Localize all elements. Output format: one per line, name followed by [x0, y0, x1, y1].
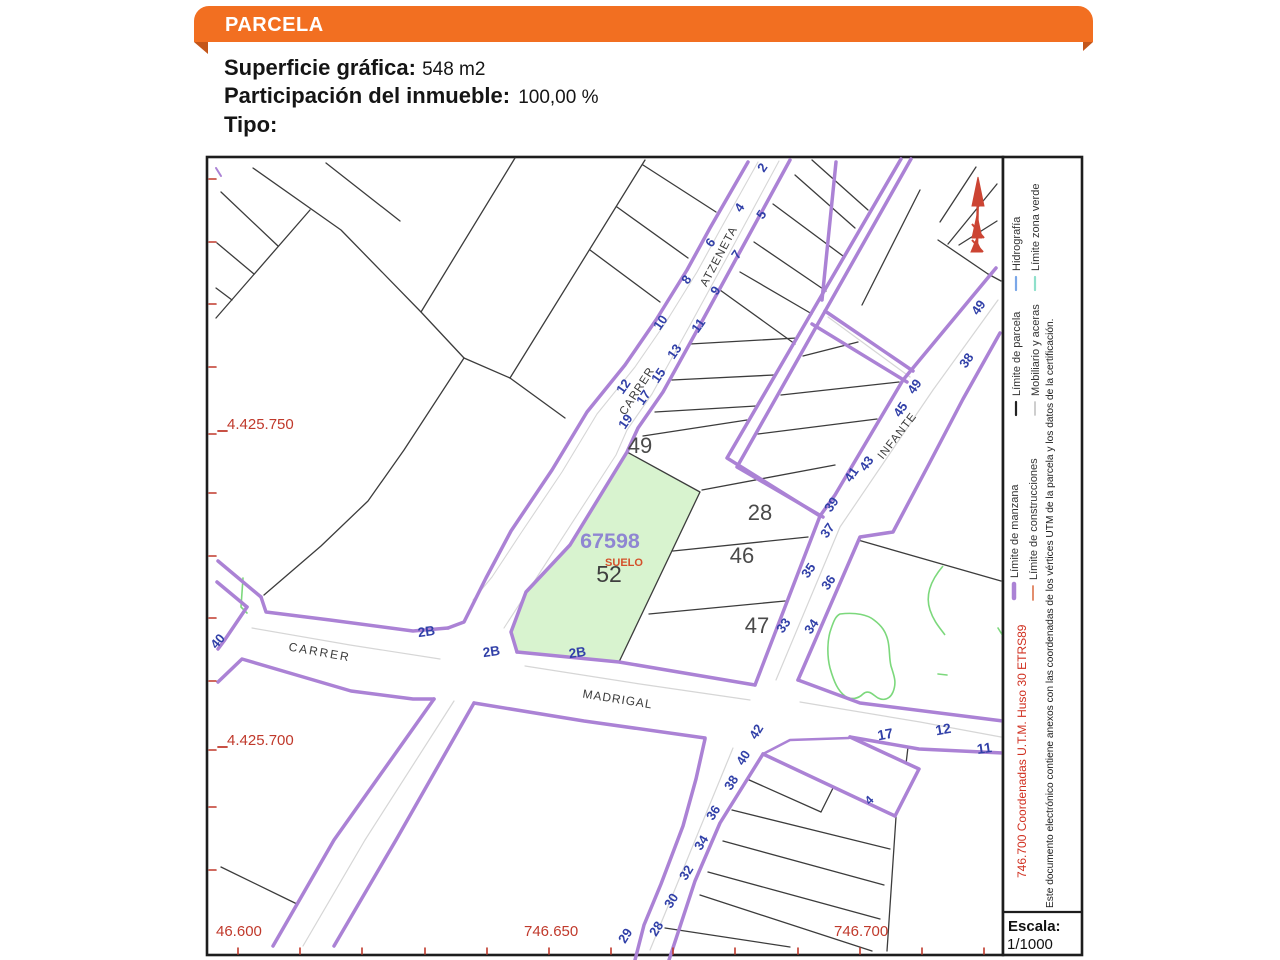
svg-text:2B: 2B — [417, 623, 436, 640]
svg-text:746.700: 746.700 — [834, 923, 888, 940]
svg-text:49: 49 — [628, 433, 652, 458]
svg-text:Este documento electrónico con: Este documento electrónico contiene anex… — [1045, 319, 1056, 909]
svg-text:Límite de parcela: Límite de parcela — [1011, 311, 1023, 396]
svg-text:11: 11 — [976, 739, 993, 757]
svg-text:746.650: 746.650 — [524, 923, 578, 940]
svg-text:4.425.700: 4.425.700 — [227, 732, 294, 749]
svg-text:Escala:: Escala: — [1008, 918, 1061, 935]
svg-text:47: 47 — [745, 613, 769, 638]
svg-text:Límite de manzana: Límite de manzana — [1009, 484, 1021, 578]
svg-text:Límite de construcciones: Límite de construcciones — [1028, 458, 1040, 580]
svg-text:Límite zona verde: Límite zona verde — [1030, 184, 1042, 271]
svg-text:46: 46 — [730, 543, 754, 568]
svg-text:4.425.750: 4.425.750 — [227, 416, 294, 433]
svg-text:46.600: 46.600 — [216, 923, 262, 940]
svg-text:1/1000: 1/1000 — [1007, 936, 1053, 953]
svg-text:2B: 2B — [482, 643, 501, 660]
svg-text:12: 12 — [934, 720, 952, 738]
svg-text:67598: 67598 — [580, 529, 640, 553]
svg-text:Mobiliario y aceras: Mobiliario y aceras — [1030, 304, 1042, 396]
svg-text:17: 17 — [876, 725, 894, 743]
svg-text:2B: 2B — [568, 644, 587, 661]
svg-text:SUELO: SUELO — [605, 557, 643, 569]
svg-text:Hidrografía: Hidrografía — [1011, 216, 1023, 271]
svg-text:28: 28 — [748, 500, 772, 525]
svg-text:746.700 Coordenadas U.T.M. Hus: 746.700 Coordenadas U.T.M. Huso 30 ETRS8… — [1015, 624, 1029, 878]
